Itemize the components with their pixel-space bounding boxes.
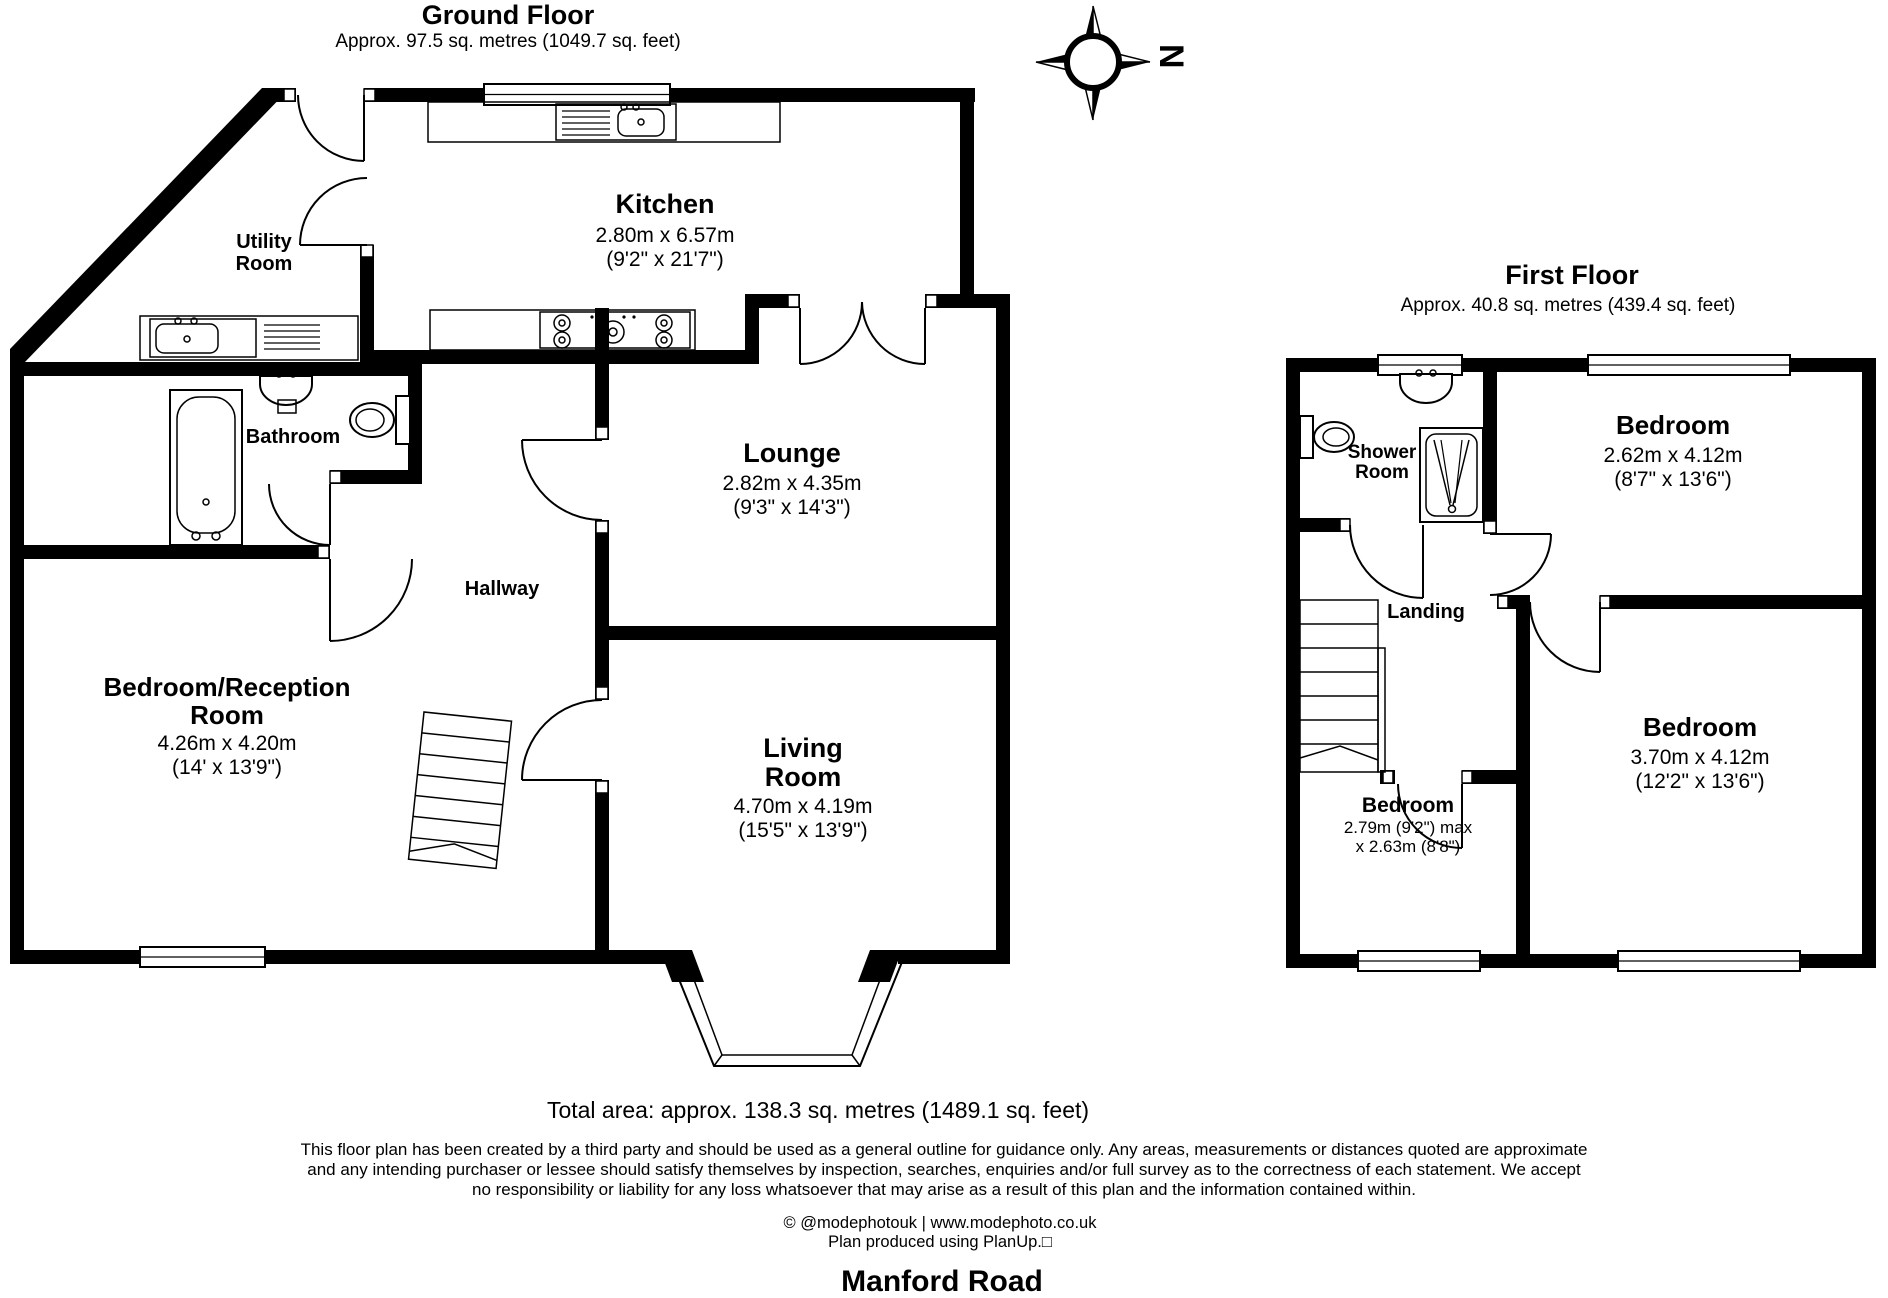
wall — [360, 245, 374, 364]
floorplan-page: Ground Floor Approx. 97.5 sq. metres (10… — [0, 0, 1888, 1298]
room-label-bathroom: Bathroom — [246, 426, 340, 448]
wall — [10, 950, 672, 964]
room-label-bedroom-reception-2: Room — [190, 700, 264, 730]
utility-sink — [150, 318, 320, 357]
room-dims-metric: 2.62m x 4.12m — [1604, 444, 1743, 467]
door-swing — [269, 484, 330, 545]
compass-north-label: N — [1152, 44, 1190, 69]
door-swing — [330, 559, 412, 641]
kitchen-sink — [556, 104, 676, 140]
window — [1618, 951, 1800, 971]
toilet — [350, 396, 410, 444]
room-dims-line1: 2.79m (9'2") max — [1344, 818, 1473, 837]
door-jamb — [364, 89, 375, 101]
door-jamb — [1600, 596, 1610, 608]
room-dims-metric: 2.82m x 4.35m — [723, 472, 862, 495]
wall — [374, 350, 745, 364]
room-label-living-room-2: Room — [765, 762, 842, 792]
first-floor-title: First Floor — [1505, 260, 1639, 290]
room-label-utility: Utility — [236, 231, 292, 253]
ground-floor-subtitle: Approx. 97.5 sq. metres (1049.7 sq. feet… — [335, 31, 680, 52]
room-dims-imperial: (12'2" x 13'6") — [1635, 770, 1764, 793]
door-jamb — [596, 687, 608, 699]
door-jamb — [596, 781, 608, 793]
room-dims-line2: x 2.63m (8'8") — [1356, 837, 1461, 856]
bathtub — [170, 390, 242, 545]
room-dims-imperial: (9'2" x 21'7") — [606, 248, 723, 271]
room-label-kitchen: Kitchen — [615, 189, 714, 219]
door-swing — [298, 95, 364, 161]
wall — [1600, 595, 1876, 609]
door-jamb — [318, 546, 329, 558]
wall — [10, 545, 330, 559]
wall — [595, 520, 609, 640]
hob-counter — [430, 310, 695, 350]
credit-text: © @modephotouk | www.modephoto.co.uk — [784, 1214, 1098, 1232]
door-jamb — [926, 295, 937, 307]
wall — [10, 349, 24, 964]
total-area-text: Total area: approx. 138.3 sq. metres (14… — [547, 1097, 1089, 1123]
wall — [745, 294, 759, 364]
door-swing — [522, 700, 602, 780]
wall — [595, 626, 1010, 640]
compass-rose: N — [1036, 6, 1190, 120]
double-door-swing — [800, 302, 925, 364]
first-floor-fixtures — [1300, 370, 1483, 772]
room-label-bedroom-small: Bedroom — [1362, 794, 1454, 817]
footer: Total area: approx. 138.3 sq. metres (14… — [301, 1097, 1588, 1298]
room-dims-metric: 4.26m x 4.20m — [158, 732, 297, 755]
wall — [898, 950, 1010, 964]
wall — [24, 362, 422, 376]
room-label-bedroom-reception: Bedroom/Reception — [103, 672, 350, 702]
room-label-bedroom-rear: Bedroom — [1643, 712, 1757, 742]
door-swing — [1490, 534, 1551, 595]
door-jamb — [596, 521, 608, 533]
ground-floor-plan: Ground Floor Approx. 97.5 sq. metres (10… — [10, 0, 1010, 1066]
first-floor-subtitle: Approx. 40.8 sq. metres (439.4 sq. feet) — [1401, 295, 1736, 316]
pedestal-sink — [260, 371, 312, 413]
window — [1378, 355, 1462, 375]
hob — [540, 312, 690, 348]
toilet — [1300, 416, 1354, 458]
door-jamb — [1462, 771, 1472, 783]
door-swing — [522, 440, 602, 520]
door-swing — [300, 178, 367, 245]
room-label-bedroom-front: Bedroom — [1616, 410, 1730, 440]
door-jamb — [1498, 596, 1508, 608]
room-dims-imperial: (15'5" x 13'9") — [738, 819, 867, 842]
disclaimer-line: and any intending purchaser or lessee sh… — [307, 1160, 1581, 1179]
door-jamb — [361, 245, 373, 257]
room-dims-imperial: (8'7" x 13'6") — [1614, 468, 1731, 491]
room-dims-metric: 2.80m x 6.57m — [596, 224, 735, 247]
door-jamb — [1484, 521, 1496, 533]
door-swing — [1350, 525, 1423, 598]
pedestal-sink — [1400, 370, 1452, 403]
door-jamb — [596, 427, 608, 439]
compass-star-icon — [1036, 6, 1150, 120]
ground-floor-walls — [10, 88, 1010, 982]
wall — [1483, 372, 1497, 534]
room-label-shower-room-2: Room — [1355, 462, 1409, 483]
door-jamb — [284, 89, 295, 101]
window — [1588, 355, 1790, 375]
ground-floor-title: Ground Floor — [422, 0, 595, 30]
room-label-living-room: Living — [763, 733, 843, 763]
door-jamb — [788, 295, 799, 307]
property-address: Manford Road — [841, 1265, 1043, 1298]
stairs — [1300, 600, 1385, 772]
door-jamb — [1340, 519, 1350, 531]
room-label-shower-room: Shower — [1348, 442, 1417, 463]
shower-tray — [1420, 428, 1483, 522]
room-label-utility-2: Room — [236, 253, 293, 275]
first-floor-jambs — [1340, 519, 1610, 783]
stairs — [409, 712, 512, 868]
window — [140, 947, 265, 967]
room-dims-metric: 3.70m x 4.12m — [1631, 746, 1770, 769]
wall — [330, 470, 422, 484]
first-floor-plan: First Floor Approx. 40.8 sq. metres (439… — [1286, 260, 1876, 971]
wall — [960, 88, 974, 308]
wall — [1516, 609, 1530, 954]
produced-with-text: Plan produced using PlanUp.□ — [828, 1233, 1052, 1251]
room-dims-imperial: (14' x 13'9") — [172, 756, 282, 779]
door-jamb — [1383, 771, 1393, 783]
floorplan-drawing: Ground Floor Approx. 97.5 sq. metres (10… — [0, 0, 1888, 1298]
door-swing — [1530, 602, 1600, 672]
first-floor-labels: Shower Room Landing Bedroom 2.62m x 4.12… — [1344, 410, 1770, 856]
wall — [595, 308, 609, 440]
room-label-landing: Landing — [1387, 601, 1465, 623]
kitchen-counter — [428, 102, 780, 142]
room-label-lounge: Lounge — [743, 438, 840, 468]
wall — [595, 780, 609, 950]
room-label-hallway: Hallway — [465, 578, 540, 600]
window — [1358, 951, 1480, 971]
room-dims-imperial: (9'3" x 14'3") — [733, 496, 850, 519]
room-dims-metric: 4.70m x 4.19m — [734, 795, 873, 818]
disclaimer-line: This floor plan has been created by a th… — [301, 1140, 1588, 1159]
wall — [1862, 358, 1876, 968]
disclaimer-line: no responsibility or liability for any l… — [472, 1180, 1416, 1199]
wall — [1286, 358, 1300, 968]
door-jamb — [330, 471, 341, 483]
